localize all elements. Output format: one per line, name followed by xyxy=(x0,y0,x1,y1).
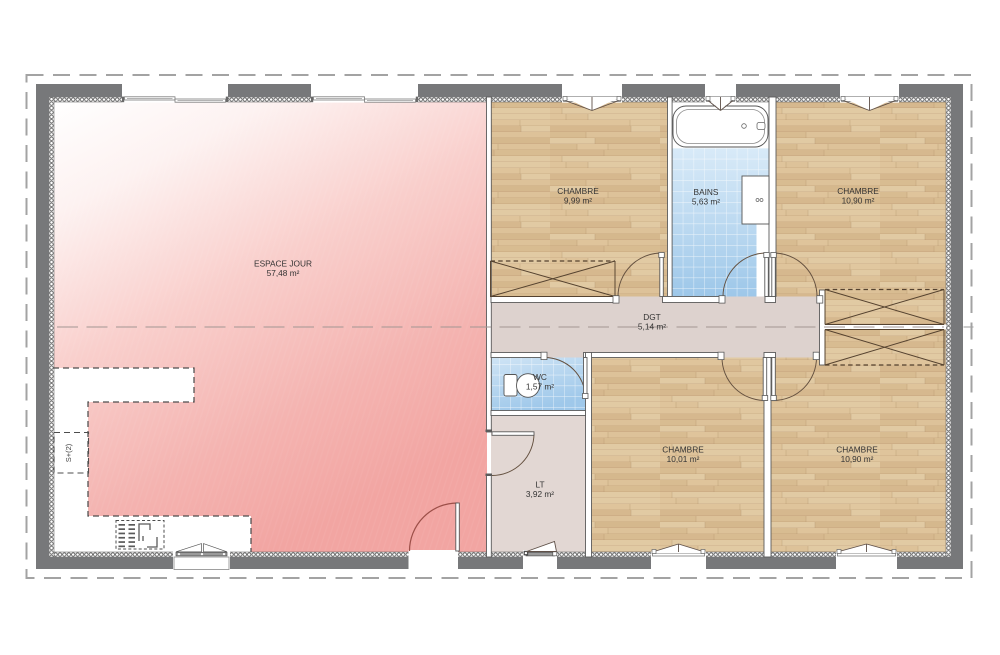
svg-text:ESPACE JOUR: ESPACE JOUR xyxy=(254,259,312,269)
svg-text:1,57 m²: 1,57 m² xyxy=(526,382,554,392)
svg-text:5,63 m²: 5,63 m² xyxy=(692,197,720,207)
svg-text:DGT: DGT xyxy=(643,312,661,322)
svg-text:LT: LT xyxy=(535,480,544,490)
svg-text:CHAMBRE: CHAMBRE xyxy=(837,186,879,196)
svg-text:CHAMBRE: CHAMBRE xyxy=(662,445,704,455)
svg-text:BAINS: BAINS xyxy=(694,187,719,197)
svg-text:10,90 m²: 10,90 m² xyxy=(842,196,875,206)
svg-text:5,14 m²: 5,14 m² xyxy=(638,322,666,332)
svg-text:3,92 m²: 3,92 m² xyxy=(526,489,554,499)
svg-text:57,48 m²: 57,48 m² xyxy=(267,268,300,278)
svg-text:10,90 m²: 10,90 m² xyxy=(841,454,874,464)
svg-text:9,99 m²: 9,99 m² xyxy=(564,196,592,206)
svg-text:10,01 m²: 10,01 m² xyxy=(667,454,700,464)
svg-text:WC: WC xyxy=(533,372,547,382)
svg-text:CHAMBRE: CHAMBRE xyxy=(557,186,599,196)
svg-text:CHAMBRE: CHAMBRE xyxy=(836,445,878,455)
svg-text:S+(2): S+(2) xyxy=(64,443,73,462)
